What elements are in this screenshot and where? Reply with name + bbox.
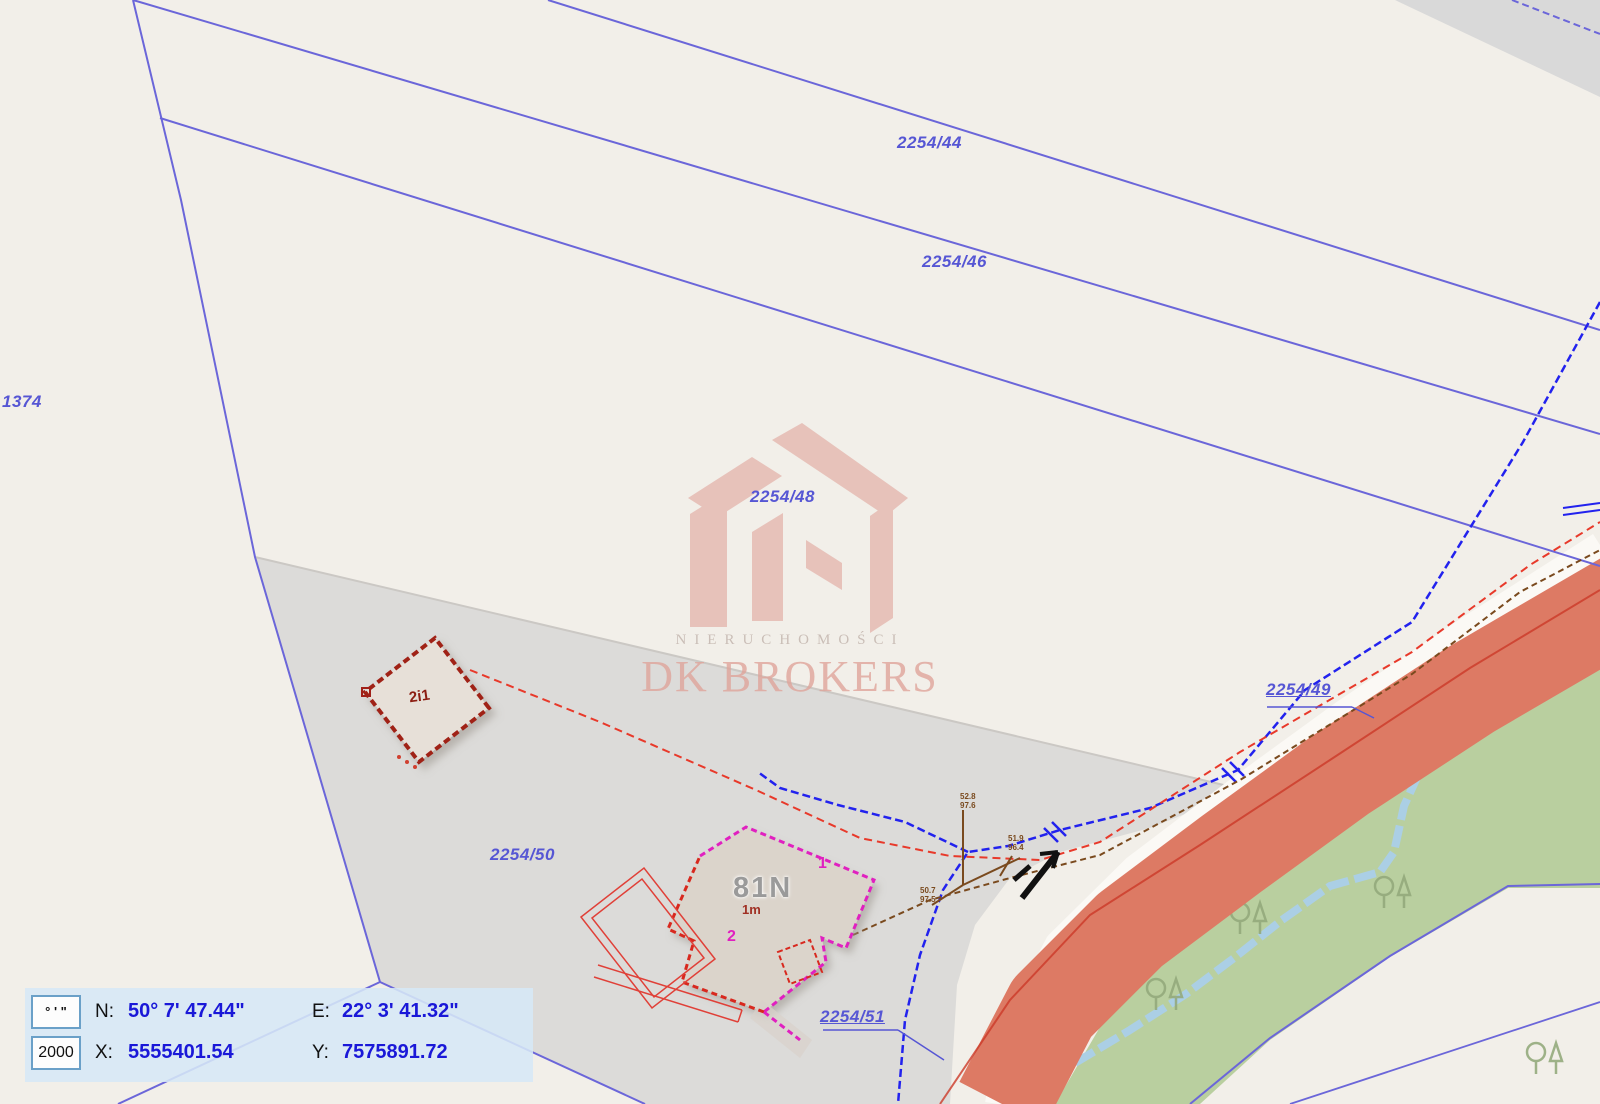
x-coordinate-label: X: bbox=[95, 1042, 113, 1064]
building-label: 2 bbox=[727, 928, 736, 946]
building-label: 2i1 bbox=[408, 687, 431, 707]
utility-annotation: 50.7 97.5 bbox=[920, 886, 936, 904]
utility-annotation: 51.9 96.4 bbox=[1008, 834, 1024, 852]
longitude-value: 22° 3' 41.32" bbox=[342, 1000, 459, 1023]
parcel-label: 2254/48 bbox=[750, 487, 815, 507]
parcel-label: 2254/51 bbox=[820, 1007, 885, 1027]
latitude-label: N: bbox=[95, 1001, 114, 1023]
y-coordinate-value: 7575891.72 bbox=[342, 1041, 448, 1064]
y-coordinate-label: Y: bbox=[312, 1042, 329, 1064]
coordinate-panel: ° ' " 2000 N: 50° 7' 47.44" E: 22° 3' 41… bbox=[25, 988, 533, 1082]
building-label: 81N bbox=[733, 872, 792, 905]
parcel-label: 2254/49 bbox=[1266, 680, 1331, 700]
building-label: 1 bbox=[818, 855, 827, 873]
x-coordinate-value: 5555401.54 bbox=[128, 1041, 234, 1064]
parcel-label: 2254/44 bbox=[897, 133, 962, 153]
map-viewport[interactable]: NIERUCHOMOŚCI DK BROKERS 2254/442254/462… bbox=[0, 0, 1600, 1104]
parcel-label: 1374 bbox=[2, 392, 42, 412]
longitude-label: E: bbox=[312, 1001, 330, 1023]
map-canvas[interactable] bbox=[0, 0, 1600, 1104]
scale-input[interactable]: 2000 bbox=[31, 1036, 81, 1070]
parcel-label: 2254/46 bbox=[922, 252, 987, 272]
latitude-value: 50° 7' 47.44" bbox=[128, 1000, 245, 1023]
dms-format-toggle[interactable]: ° ' " bbox=[31, 995, 81, 1029]
utility-annotation: 52.8 97.6 bbox=[960, 792, 976, 810]
building-label: 1m bbox=[742, 902, 761, 917]
parcel-label: 2254/50 bbox=[490, 845, 555, 865]
